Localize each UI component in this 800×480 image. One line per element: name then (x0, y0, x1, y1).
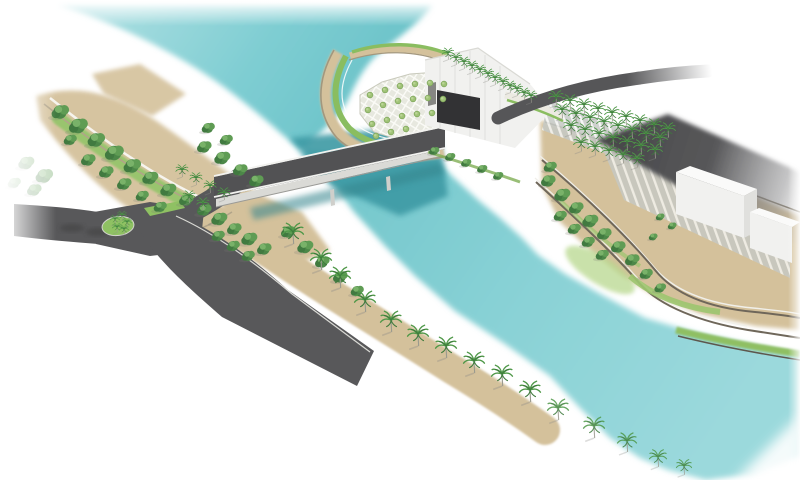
olive-instance (373, 133, 379, 139)
road-tree-shadow (60, 224, 84, 232)
left-fade (0, 0, 56, 480)
olive-instance (403, 126, 409, 132)
olive-instance (425, 95, 431, 101)
olive-instance (412, 81, 418, 87)
olive-instance (399, 113, 405, 119)
olive-instance (395, 98, 401, 104)
olive-instance (384, 117, 390, 123)
olive-instance (388, 129, 394, 135)
olive-instance (414, 111, 420, 117)
olive-instance (382, 87, 388, 93)
olive-instance (429, 110, 435, 116)
olive-instance (440, 96, 446, 102)
olive-instance (369, 121, 375, 127)
olive-instance (367, 92, 373, 98)
olive-instance (365, 107, 371, 113)
right-fade (788, 0, 800, 480)
olive-instance (427, 80, 433, 86)
olive-instance (410, 96, 416, 102)
render-canvas (0, 0, 800, 480)
olive-instance (397, 83, 403, 89)
olive-instance (380, 102, 386, 108)
top-fade (0, 0, 800, 26)
olive-instance (441, 81, 447, 87)
